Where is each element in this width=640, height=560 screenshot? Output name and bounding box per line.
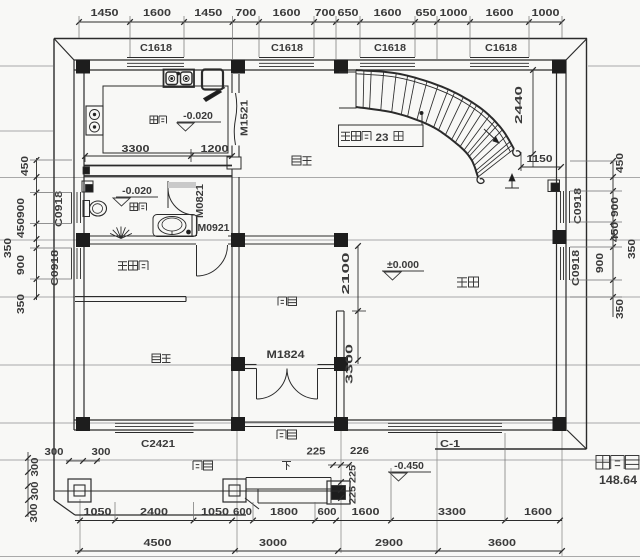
svg-text:225: 225 [307,447,326,458]
svg-text:1450: 1450 [91,7,119,19]
svg-text:1600: 1600 [374,7,402,19]
svg-text:1600: 1600 [143,7,171,19]
svg-text:4500: 4500 [144,537,172,549]
svg-text:700: 700 [235,7,256,19]
svg-text:2400: 2400 [140,506,168,518]
svg-text:23: 23 [376,132,389,144]
svg-text:1150: 1150 [527,153,553,165]
svg-text:600: 600 [318,506,337,518]
svg-text:600: 600 [233,506,252,518]
svg-text:1600: 1600 [273,7,301,19]
svg-text:2900: 2900 [375,537,403,549]
svg-text:900: 900 [610,196,621,217]
svg-text:1600: 1600 [352,506,380,518]
svg-text:900: 900 [16,197,27,218]
svg-text:900: 900 [595,252,606,273]
svg-text:M0921: M0921 [198,222,230,234]
svg-text:900: 900 [16,254,27,275]
svg-text:C0918: C0918 [50,249,61,286]
svg-text:1450: 1450 [194,7,222,19]
svg-text:±0.000: ±0.000 [387,259,419,271]
svg-text:450: 450 [16,217,27,238]
svg-text:225: 225 [348,464,359,483]
svg-text:3600: 3600 [488,537,516,549]
svg-text:M1824: M1824 [267,349,306,361]
svg-text:450: 450 [20,155,31,176]
svg-text:3300: 3300 [344,344,356,384]
svg-text:350: 350 [627,238,638,259]
svg-text:-0.450: -0.450 [394,460,424,472]
svg-text:300: 300 [45,447,64,458]
svg-text:226: 226 [350,446,369,457]
svg-text:1600: 1600 [524,506,552,518]
svg-text:1800: 1800 [270,506,298,518]
svg-text:300: 300 [30,457,41,476]
svg-text:C1618: C1618 [485,42,517,54]
svg-text:C-1: C-1 [440,438,460,450]
svg-text:C0918: C0918 [54,190,65,227]
svg-text:450: 450 [615,152,626,173]
svg-text:-0.020: -0.020 [122,185,152,197]
svg-text:1600: 1600 [486,7,514,19]
svg-text:C1618: C1618 [271,42,303,54]
svg-text:C2421: C2421 [141,438,175,450]
svg-text:350: 350 [615,298,626,319]
svg-text:148.64: 148.64 [599,475,638,487]
svg-text:M1521: M1521 [239,100,251,136]
svg-text:C0918: C0918 [571,249,582,286]
svg-text:1050: 1050 [201,506,229,518]
svg-text:1000: 1000 [532,7,560,19]
svg-text:1000: 1000 [440,7,468,19]
svg-text:1050: 1050 [84,506,112,518]
svg-text:350: 350 [3,237,14,258]
svg-text:300: 300 [29,503,40,522]
svg-text:1200: 1200 [201,143,229,155]
svg-text:450: 450 [610,221,621,242]
svg-text:300: 300 [92,447,111,458]
svg-text:C1618: C1618 [140,42,172,54]
svg-text:-0.020: -0.020 [183,110,213,122]
svg-text:300: 300 [30,481,41,500]
svg-text:C1618: C1618 [374,42,406,54]
svg-text:2440: 2440 [513,86,525,124]
svg-text:3300: 3300 [438,506,466,518]
svg-text:C0918: C0918 [573,187,584,224]
svg-text:650: 650 [416,7,437,19]
svg-text:700: 700 [315,7,336,19]
svg-text:3000: 3000 [259,537,287,549]
svg-text:3300: 3300 [122,143,150,155]
svg-text:650: 650 [338,7,359,19]
svg-text:M0821: M0821 [194,184,206,218]
svg-text:350: 350 [16,293,27,314]
svg-text:225: 225 [348,485,359,504]
svg-text:2100: 2100 [340,252,352,294]
